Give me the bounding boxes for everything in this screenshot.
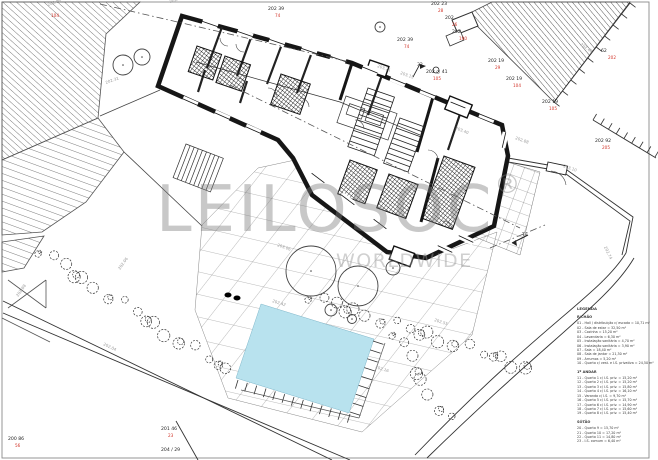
survey-label: 202 39: [397, 37, 413, 43]
survey-label: 200 86: [8, 436, 24, 442]
survey-label-elevation: 104: [513, 83, 521, 88]
survey-label: 202 ○ 41: [426, 69, 448, 75]
survey-label-elevation: 26: [452, 22, 458, 27]
legend-title: LEGENDA: [577, 306, 653, 311]
survey-label: 62: [601, 48, 607, 54]
survey-label-elevation: 56: [15, 443, 21, 448]
survey-label-elevation: 190: [459, 36, 467, 41]
survey-label: 202 19: [506, 76, 522, 82]
legend-section-header: SÓTÃO: [577, 420, 653, 425]
survey-label: Tv: [521, 232, 528, 238]
survey-label-elevation: 29: [495, 65, 501, 70]
legend-item: 23 - I.S. comum = 6,40 m²: [577, 439, 653, 443]
survey-label-elevation: 74: [275, 13, 281, 18]
survey-label: 202: [452, 29, 461, 35]
site-plan-page: 202 232820226202190202 3974202 3974202 ○…: [0, 0, 658, 460]
survey-label: 202: [445, 15, 454, 21]
survey-label-elevation: 105: [433, 76, 441, 81]
survey-label-elevation: 23: [168, 433, 174, 438]
legend-section-header: 1º ANDAR: [577, 370, 653, 375]
legend-section-header: R/CHÃO: [577, 315, 653, 320]
survey-label-elevation: 202: [608, 55, 616, 60]
survey-label: 202 19: [542, 99, 558, 105]
legend-item: 19 - Quarto 8 c/ I.S. priv. = 15,40 m²: [577, 411, 653, 415]
survey-label: 201 46: [161, 426, 177, 432]
survey-label-elevation: 104: [51, 13, 59, 18]
legend: LEGENDAR/CHÃO01 - Hall / distribuição c/…: [577, 306, 653, 444]
survey-label: 204 / 29: [161, 447, 180, 453]
survey-label-elevation: 205: [602, 145, 610, 150]
survey-label-elevation: 105: [549, 106, 557, 111]
survey-label: 32: [417, 62, 423, 68]
survey-label-elevation: 74: [404, 44, 410, 49]
survey-label: 202 19: [488, 58, 504, 64]
legend-item: 10 - Quarto c/ vest. e I.S. privativa = …: [577, 361, 653, 365]
survey-label: 202 39: [268, 6, 284, 12]
survey-label: 202 92: [595, 138, 611, 144]
site-plan-drawing: 202 232820226202190202 3974202 3974202 ○…: [0, 0, 658, 460]
survey-label: 202 23: [431, 1, 447, 7]
survey-label-elevation: 28: [438, 8, 444, 13]
